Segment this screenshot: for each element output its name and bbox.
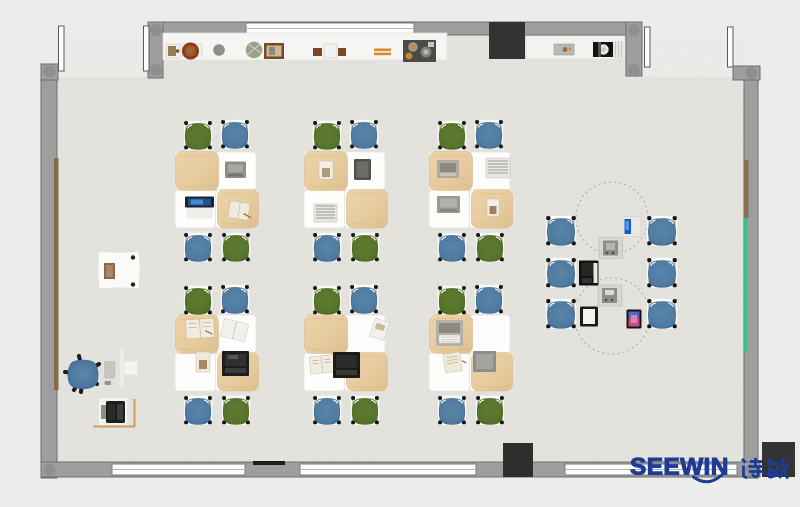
svg-text:SEEWIN: SEEWIN <box>630 454 729 481</box>
